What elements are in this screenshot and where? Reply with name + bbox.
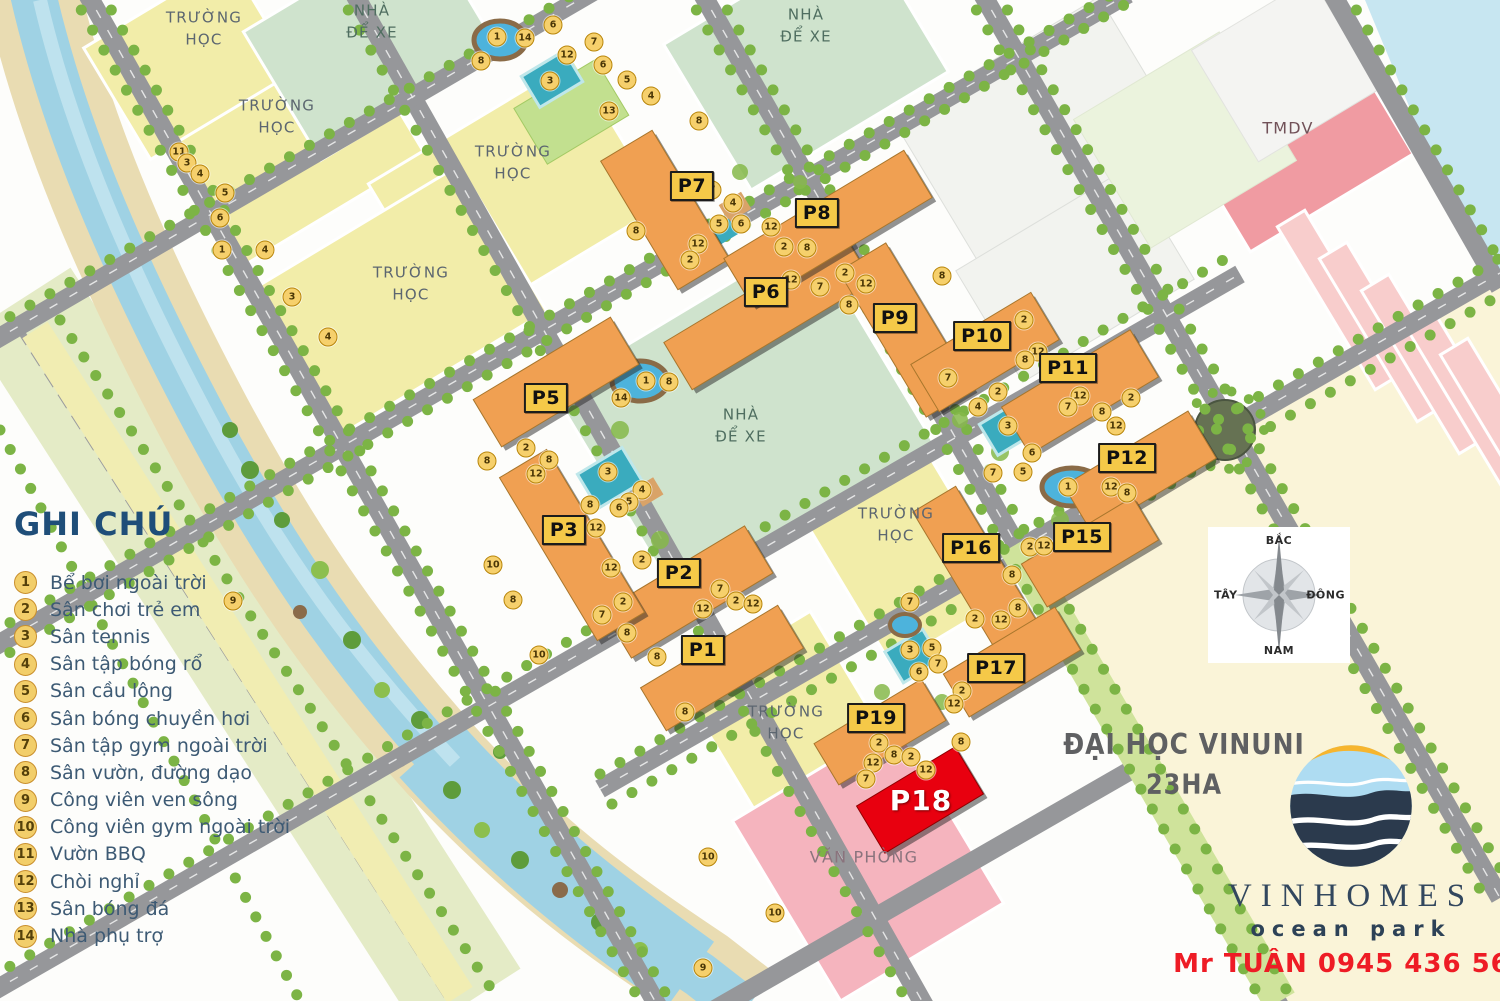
legend-item-label: Sân chơi trẻ em (50, 599, 200, 621)
legend-item: 6Sân bóng chuyền hơi (14, 705, 314, 732)
legend-item-number: 14 (14, 925, 37, 948)
legend-item-number: 2 (14, 598, 37, 621)
legend-item-number: 7 (14, 734, 37, 757)
legend-item-number: 6 (14, 707, 37, 730)
brand-name: VINHOMES (1150, 878, 1500, 915)
legend-item-label: Sân bóng đá (50, 898, 169, 920)
legend-item-number: 1 (14, 571, 37, 594)
legend-item: 9Công viên ven sông (14, 787, 314, 814)
legend-item-number: 8 (14, 761, 37, 784)
legend-item: 10Công viên gym ngoài trời (14, 814, 314, 841)
compass-east: ĐÔNG (1306, 589, 1345, 602)
legend-item-number: 9 (14, 789, 37, 812)
legend-item-label: Sân cầu lông (50, 680, 173, 702)
legend-item-label: Sân tập bóng rổ (50, 653, 202, 675)
legend-item-label: Sân tập gym ngoài trời (50, 735, 268, 757)
branding-block: VINHOMES ocean park Mr TUÂN 0945 436 569 (1150, 742, 1500, 979)
legend-item: 5Sân cầu lông (14, 678, 314, 705)
legend-item: 8Sân vườn, đường dạo (14, 759, 314, 786)
legend-item: 4Sân tập bóng rổ (14, 651, 314, 678)
compass-south: NAM (1264, 644, 1294, 657)
legend-item-number: 11 (14, 843, 37, 866)
legend-item: 14Nhà phụ trợ (14, 922, 314, 949)
legend-item: 2Sân chơi trẻ em (14, 596, 314, 623)
legend-item-label: Sân tennis (50, 626, 150, 648)
legend-item-label: Vườn BBQ (50, 843, 146, 865)
compass-west: TÂY (1214, 589, 1238, 602)
compass: BẮC NAM TÂY ĐÔNG (1208, 527, 1350, 663)
legend-item-label: Chòi nghỉ (50, 871, 140, 893)
legend-item: 11Vườn BBQ (14, 841, 314, 868)
legend-list: 1Bể bơi ngoài trời2Sân chơi trẻ em3Sân t… (14, 569, 314, 950)
legend-item-label: Nhà phụ trợ (50, 925, 163, 947)
legend-item: 12Chòi nghỉ (14, 868, 314, 895)
legend-item-number: 4 (14, 653, 37, 676)
legend-item-number: 13 (14, 897, 37, 920)
legend-item: 3Sân tennis (14, 623, 314, 650)
vinhomes-logo-icon (1287, 742, 1415, 870)
legend-item-number: 12 (14, 870, 37, 893)
legend-item-number: 5 (14, 680, 37, 703)
legend-item-label: Sân bóng chuyền hơi (50, 708, 250, 730)
contact-phone: Mr TUÂN 0945 436 569 (1150, 949, 1500, 979)
legend-item-label: Công viên gym ngoài trời (50, 816, 290, 838)
legend-item-label: Công viên ven sông (50, 789, 238, 811)
legend-item-label: Sân vườn, đường dạo (50, 762, 252, 784)
legend-item-number: 10 (14, 816, 37, 839)
legend-item: 13Sân bóng đá (14, 895, 314, 922)
legend-item-label: Bể bơi ngoài trời (50, 572, 207, 594)
compass-north: BẮC (1266, 534, 1292, 547)
masterplan-map: TRƯỜNG HỌCTRƯỜNG HỌCTRƯỜNG HỌCTRƯỜNG HỌC… (0, 0, 1500, 1001)
brand-subtitle: ocean park (1150, 917, 1500, 941)
legend-item: 7Sân tập gym ngoài trời (14, 732, 314, 759)
legend-title: GHI CHÚ (14, 505, 314, 543)
legend-item-number: 3 (14, 625, 37, 648)
legend: GHI CHÚ 1Bể bơi ngoài trời2Sân chơi trẻ … (14, 505, 314, 950)
legend-item: 1Bể bơi ngoài trời (14, 569, 314, 596)
